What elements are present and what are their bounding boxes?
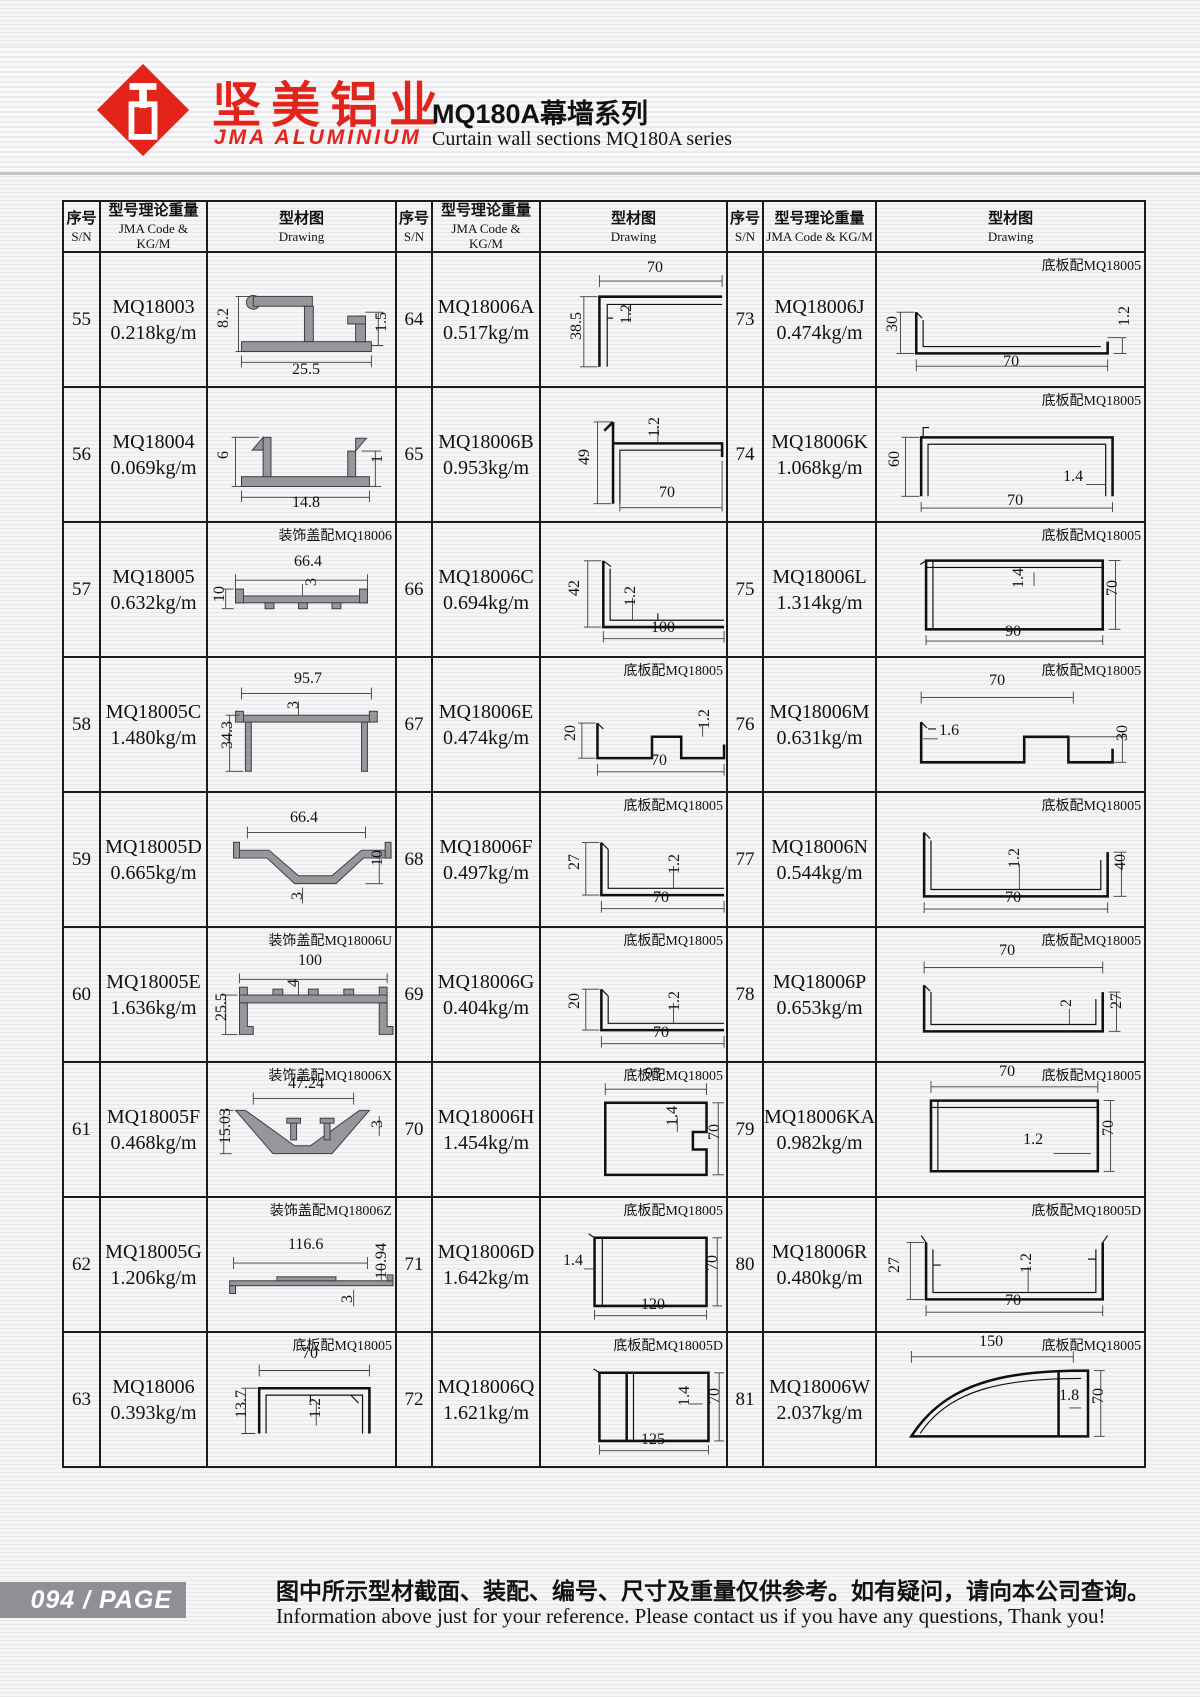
profile-code: MQ18006L <box>764 564 875 590</box>
dim-label: 70 <box>1003 354 1019 370</box>
col-header-drawing: 型材图Drawing <box>540 201 727 252</box>
dim-label: 70 <box>1105 580 1121 596</box>
dim-label: 1.5 <box>374 312 390 332</box>
col-header-sn: 序号S/N <box>396 201 432 252</box>
profile-weight: 0.404kg/m <box>433 995 539 1021</box>
table-row: 55 MQ180030.218kg/m 8.2 25.5 1.5 64 MQ18… <box>63 252 1145 387</box>
profile-weight: 1.642kg/m <box>433 1265 539 1291</box>
profile-weight: 0.517kg/m <box>433 320 539 346</box>
table-row: 58 MQ18005C1.480kg/m 95.7 34.3 3 67 MQ18… <box>63 657 1145 792</box>
table-row: 63 MQ180060.393kg/m 底板配MQ18005 70 13.7 1… <box>63 1332 1145 1467</box>
dim-label: 42 <box>567 580 583 596</box>
profile-code: MQ18006F <box>433 834 539 860</box>
profile-weight: 1.454kg/m <box>433 1130 539 1156</box>
profile-weight: 0.694kg/m <box>433 590 539 616</box>
code-cell: MQ18006B0.953kg/m <box>432 387 540 522</box>
profile-code: MQ18005D <box>101 834 206 860</box>
dim-label: 2 <box>1059 999 1075 1007</box>
col-header-code: 型号理论重量JMA Code & KG/M <box>763 201 876 252</box>
code-cell: MQ18006D1.642kg/m <box>432 1197 540 1332</box>
code-cell: MQ18006H1.454kg/m <box>432 1062 540 1197</box>
drawing-cell: 底板配MQ18005 93 1.4 70 <box>540 1062 727 1197</box>
footer-disclaimer-cn: 图中所示型材截面、装配、编号、尺寸及重量仅供参考。如有疑问，请向本公司查询。 <box>276 1572 1150 1606</box>
dim-label: 1.2 <box>623 586 639 606</box>
sn-cell: 76 <box>727 657 763 792</box>
drawing-cell: 6 14.8 1 <box>207 387 396 522</box>
sn-cell: 73 <box>727 252 763 387</box>
dim-label: 27 <box>887 1257 903 1273</box>
dim-label: 70 <box>302 1346 318 1362</box>
drawing-cell: 底板配MQ18005 60 1.4 70 <box>876 387 1145 522</box>
dim-label: 3 <box>290 892 306 900</box>
sn-cell: 75 <box>727 522 763 657</box>
table-row: 56 MQ180040.069kg/m 6 14.8 1 65 MQ18006B… <box>63 387 1145 522</box>
sn-cell: 66 <box>396 522 432 657</box>
profile-code: MQ18006W <box>764 1374 875 1400</box>
dim-label: 20 <box>567 993 583 1009</box>
profile-weight: 0.468kg/m <box>101 1130 206 1156</box>
drawing-cell: 装饰盖配MQ18006X 47.24 15.03 3 <box>207 1062 396 1197</box>
table-header-row: 序号S/N 型号理论重量JMA Code & KG/M 型材图Drawing 序… <box>63 201 1145 252</box>
drawing-cell: 底板配MQ18005D 27 1.2 70 <box>876 1197 1145 1332</box>
header-code-cn: 型号理论重量 <box>764 210 875 229</box>
dim-label: 1.4 <box>677 1386 693 1406</box>
col-header-code: 型号理论重量JMA Code & KG/M <box>432 201 540 252</box>
dim-label: 66.4 <box>290 810 318 826</box>
dim-label: 95.7 <box>294 671 322 687</box>
code-cell: MQ18006W2.037kg/m <box>763 1332 876 1467</box>
drawing-cell: 95.7 34.3 3 <box>207 657 396 792</box>
dim-label: 27 <box>567 854 583 870</box>
profile-code: MQ18006KA <box>764 1104 875 1130</box>
profile-code: MQ18005F <box>101 1104 206 1130</box>
sn-cell: 63 <box>63 1332 100 1467</box>
drawing-cell: 装饰盖配MQ18006 66.4 3 10 <box>207 522 396 657</box>
profile-weight: 0.631kg/m <box>764 725 875 751</box>
dim-label: 8.2 <box>216 308 232 328</box>
header-code-en: JMA Code & KG/M <box>101 221 206 251</box>
code-cell: MQ18006N0.544kg/m <box>763 792 876 927</box>
dim-label: 1.4 <box>1011 568 1027 588</box>
drawing-cell: 底板配MQ18005 20 1.2 70 <box>540 927 727 1062</box>
profile-weight: 0.497kg/m <box>433 860 539 886</box>
profile-code: MQ18006R <box>764 1239 875 1265</box>
dim-label: 93 <box>645 1066 661 1082</box>
table-row: 59 MQ18005D0.665kg/m 66.4 10 3 68 MQ1800… <box>63 792 1145 927</box>
profile-65-drawing-icon <box>541 397 726 517</box>
footer-disclaimer-en: Information above just for your referenc… <box>276 1604 1105 1629</box>
sn-cell: 57 <box>63 522 100 657</box>
profile-weight: 1.068kg/m <box>764 455 875 481</box>
dim-label: 49 <box>577 449 593 465</box>
drawing-cell: 66.4 10 3 <box>207 792 396 927</box>
code-cell: MQ18006P0.653kg/m <box>763 927 876 1062</box>
code-cell: MQ18005D0.665kg/m <box>100 792 207 927</box>
drawing-cell: 装饰盖配MQ18006Z 116.6 10.94 3 <box>207 1197 396 1332</box>
code-cell: MQ18005E1.636kg/m <box>100 927 207 1062</box>
dim-label: 70 <box>705 1255 721 1271</box>
drawing-cell: 42 1.2 100 <box>540 522 727 657</box>
code-cell: MQ18006R0.480kg/m <box>763 1197 876 1332</box>
dim-label: 60 <box>887 451 903 467</box>
dim-label: 34.3 <box>220 721 236 749</box>
table-row: 62 MQ18005G1.206kg/m 装饰盖配MQ18006Z 116.6 … <box>63 1197 1145 1332</box>
drawing-cell: 49 1.2 70 <box>540 387 727 522</box>
sn-cell: 61 <box>63 1062 100 1197</box>
code-cell: MQ18006F0.497kg/m <box>432 792 540 927</box>
profile-code: MQ18006D <box>433 1239 539 1265</box>
sn-cell: 70 <box>396 1062 432 1197</box>
sn-cell: 60 <box>63 927 100 1062</box>
header-code-cn: 型号理论重量 <box>101 202 206 221</box>
code-cell: MQ18006G0.404kg/m <box>432 927 540 1062</box>
profile-80-drawing-icon <box>877 1207 1142 1327</box>
sn-cell: 72 <box>396 1332 432 1467</box>
sn-cell: 59 <box>63 792 100 927</box>
dim-label: 90 <box>1005 624 1021 640</box>
code-cell: MQ18006J0.474kg/m <box>763 252 876 387</box>
dim-label: 1.6 <box>939 723 959 739</box>
profile-code: MQ18003 <box>101 294 206 320</box>
drawing-cell: 底板配MQ18005 1.4 90 70 <box>876 522 1145 657</box>
dim-label: 25.5 <box>214 993 230 1021</box>
dim-label: 1.2 <box>697 709 713 729</box>
drawing-cell: 底板配MQ18005D 1.4 125 70 <box>540 1332 727 1467</box>
dim-label: 3 <box>370 1120 386 1128</box>
sn-cell: 65 <box>396 387 432 522</box>
drawing-cell: 底板配MQ18005 1.4 120 70 <box>540 1197 727 1332</box>
dim-label: 70 <box>653 1025 669 1041</box>
sn-cell: 67 <box>396 657 432 792</box>
profile-code: MQ18006G <box>433 969 539 995</box>
code-cell: MQ18006K1.068kg/m <box>763 387 876 522</box>
header-draw-cn: 型材图 <box>208 210 395 229</box>
drawing-cell: 底板配MQ18005 70 13.7 1.2 <box>207 1332 396 1467</box>
profile-code: MQ18006M <box>764 699 875 725</box>
sn-cell: 62 <box>63 1197 100 1332</box>
drawing-cell: 底板配MQ18005 30 70 1.2 <box>876 252 1145 387</box>
sn-cell: 64 <box>396 252 432 387</box>
dim-label: 1.4 <box>1063 469 1083 485</box>
profile-weight: 0.953kg/m <box>433 455 539 481</box>
dim-label: 10.94 <box>374 1243 390 1279</box>
dim-label: 70 <box>1005 890 1021 906</box>
profile-code: MQ18006B <box>433 429 539 455</box>
sn-cell: 79 <box>727 1062 763 1197</box>
dim-label: 70 <box>707 1388 723 1404</box>
col-header-sn: 序号S/N <box>63 201 100 252</box>
header-code-en: JMA Code & KG/M <box>433 221 539 251</box>
sn-cell: 81 <box>727 1332 763 1467</box>
profile-code: MQ18006K <box>764 429 875 455</box>
code-cell: MQ18005C1.480kg/m <box>100 657 207 792</box>
profile-weight: 1.314kg/m <box>764 590 875 616</box>
profile-weight: 0.474kg/m <box>433 725 539 751</box>
code-cell: MQ180040.069kg/m <box>100 387 207 522</box>
profile-code: MQ18006 <box>101 1374 206 1400</box>
profile-code: MQ18006H <box>433 1104 539 1130</box>
profile-weight: 0.653kg/m <box>764 995 875 1021</box>
code-cell: MQ18006L1.314kg/m <box>763 522 876 657</box>
page-title-cn: MQ180A幕墙系列 <box>432 92 648 131</box>
dim-label: 70 <box>1091 1388 1107 1404</box>
header-code-en: JMA Code & KG/M <box>764 229 875 244</box>
drawing-cell: 装饰盖配MQ18006U 100 25.5 4 <box>207 927 396 1062</box>
dim-label: 70 <box>1005 1293 1021 1309</box>
dim-label: 70 <box>651 753 667 769</box>
dim-label: 3 <box>304 578 320 586</box>
dim-label: 1.2 <box>667 991 683 1011</box>
drawing-cell: 底板配MQ18005 20 1.2 70 <box>540 657 727 792</box>
dim-label: 1.2 <box>619 304 635 324</box>
profile-code: MQ18006N <box>764 834 875 860</box>
profile-weight: 0.218kg/m <box>101 320 206 346</box>
page-title-en: Curtain wall sections MQ180A series <box>432 128 732 151</box>
header-draw-cn: 型材图 <box>877 210 1144 229</box>
dim-label: 20 <box>563 725 579 741</box>
sn-cell: 77 <box>727 792 763 927</box>
dim-label: 116.6 <box>288 1237 323 1253</box>
drawing-cell: 底板配MQ18005 1.2 70 40 <box>876 792 1145 927</box>
jma-diamond-logo-icon <box>95 62 191 158</box>
header-draw-cn: 型材图 <box>541 210 726 229</box>
dim-label: 70 <box>653 890 669 906</box>
profile-weight: 1.636kg/m <box>101 995 206 1021</box>
dim-label: 40 <box>1113 854 1129 870</box>
profile-catalog-table: 序号S/N 型号理论重量JMA Code & KG/M 型材图Drawing 序… <box>62 200 1146 1468</box>
dim-label: 1.2 <box>308 1398 324 1418</box>
sn-cell: 68 <box>396 792 432 927</box>
col-header-sn: 序号S/N <box>727 201 763 252</box>
code-cell: MQ18005F0.468kg/m <box>100 1062 207 1197</box>
drawing-cell: 底板配MQ18005 70 1.2 70 <box>876 1062 1145 1197</box>
code-cell: MQ18005G1.206kg/m <box>100 1197 207 1332</box>
profile-62-drawing-icon <box>208 1207 395 1327</box>
header-draw-en: Drawing <box>541 229 726 244</box>
profile-code: MQ18006A <box>433 294 539 320</box>
code-cell: MQ18006M0.631kg/m <box>763 657 876 792</box>
sn-cell: 74 <box>727 387 763 522</box>
dim-label: 70 <box>999 943 1015 959</box>
dim-label: 1.2 <box>1023 1132 1043 1148</box>
dim-label: 1.4 <box>563 1253 583 1269</box>
sn-cell: 78 <box>727 927 763 1062</box>
col-header-drawing: 型材图Drawing <box>876 201 1145 252</box>
dim-label: 1.2 <box>667 854 683 874</box>
profile-72-drawing-icon <box>541 1342 726 1462</box>
profile-weight: 1.480kg/m <box>101 725 206 751</box>
profile-code: MQ18005C <box>101 699 206 725</box>
profile-code: MQ18006P <box>764 969 875 995</box>
profile-57-drawing-icon <box>208 532 395 652</box>
dim-label: 3 <box>286 701 302 709</box>
code-cell: MQ18006Q1.621kg/m <box>432 1332 540 1467</box>
dim-label: 25.5 <box>292 362 320 378</box>
dim-label: 47.24 <box>288 1076 324 1092</box>
header-sn-cn: 序号 <box>728 210 762 229</box>
code-cell: MQ18006KA0.982kg/m <box>763 1062 876 1197</box>
drawing-cell: 底板配MQ18005 70 2 27 <box>876 927 1145 1062</box>
dim-label: 70 <box>1007 493 1023 509</box>
dim-label: 30 <box>885 316 901 332</box>
dim-label: 1.2 <box>1117 306 1133 326</box>
code-cell: MQ180060.393kg/m <box>100 1332 207 1467</box>
dim-label: 66.4 <box>294 554 322 570</box>
header-sn-cn: 序号 <box>64 210 99 229</box>
dim-label: 70 <box>999 1064 1015 1080</box>
profile-weight: 0.393kg/m <box>101 1400 206 1426</box>
col-header-code: 型号理论重量JMA Code & KG/M <box>100 201 207 252</box>
code-cell: MQ18006E0.474kg/m <box>432 657 540 792</box>
drawing-cell: 底板配MQ18005 150 1.8 70 <box>876 1332 1145 1467</box>
profile-weight: 2.037kg/m <box>764 1400 875 1426</box>
dim-label: 10 <box>212 586 228 602</box>
dim-label: 4 <box>286 979 302 987</box>
dim-label: 70 <box>707 1124 723 1140</box>
profile-code: MQ18005E <box>101 969 206 995</box>
dim-label: 1.2 <box>1019 1253 1035 1273</box>
company-name-en: JMA ALUMINIUM <box>214 126 422 150</box>
header-sn-cn: 序号 <box>397 210 431 229</box>
dim-label: 1.2 <box>1007 848 1023 868</box>
profile-code: MQ18006J <box>764 294 875 320</box>
header-sn-en: S/N <box>397 229 431 244</box>
dim-label: 30 <box>1115 725 1131 741</box>
dim-label: 27 <box>1109 993 1125 1009</box>
profile-weight: 1.206kg/m <box>101 1265 206 1291</box>
dim-label: 150 <box>979 1334 1003 1350</box>
dim-label: 14.8 <box>292 495 320 511</box>
sn-cell: 80 <box>727 1197 763 1332</box>
dim-label: 1.8 <box>1059 1388 1079 1404</box>
profile-weight: 0.069kg/m <box>101 455 206 481</box>
drawing-cell: 底板配MQ18005 70 1.6 30 <box>876 657 1145 792</box>
dim-label: 38.5 <box>569 312 585 340</box>
profile-76-drawing-icon <box>877 667 1142 787</box>
dim-label: 3 <box>340 1295 356 1303</box>
dim-label: 125 <box>641 1432 665 1448</box>
code-cell: MQ18006C0.694kg/m <box>432 522 540 657</box>
profile-code: MQ18004 <box>101 429 206 455</box>
header-code-cn: 型号理论重量 <box>433 202 539 221</box>
col-header-drawing: 型材图Drawing <box>207 201 396 252</box>
code-cell: MQ18006A0.517kg/m <box>432 252 540 387</box>
profile-code: MQ18005G <box>101 1239 206 1265</box>
profile-weight: 0.665kg/m <box>101 860 206 886</box>
page-number-badge: 094 / PAGE <box>0 1582 186 1618</box>
sn-cell: 58 <box>63 657 100 792</box>
dim-label: 13.7 <box>234 1390 250 1418</box>
dim-label: 100 <box>651 620 675 636</box>
dim-label: 70 <box>1101 1120 1117 1136</box>
table-row: 57 MQ180050.632kg/m 装饰盖配MQ18006 66.4 3 1… <box>63 522 1145 657</box>
dim-label: 15.03 <box>218 1108 234 1144</box>
code-cell: MQ180030.218kg/m <box>100 252 207 387</box>
dim-label: 1.4 <box>665 1106 681 1126</box>
profile-code: MQ18006C <box>433 564 539 590</box>
code-cell: MQ180050.632kg/m <box>100 522 207 657</box>
profile-code: MQ18006Q <box>433 1374 539 1400</box>
dim-label: 1 <box>370 455 386 463</box>
sn-cell: 71 <box>396 1197 432 1332</box>
profile-weight: 0.632kg/m <box>101 590 206 616</box>
header-draw-en: Drawing <box>877 229 1144 244</box>
dim-label: 1.2 <box>647 417 663 437</box>
profile-weight: 0.544kg/m <box>764 860 875 886</box>
profile-weight: 0.474kg/m <box>764 320 875 346</box>
profile-70-drawing-icon <box>541 1072 726 1192</box>
profile-code: MQ18005 <box>101 564 206 590</box>
table-row: 61 MQ18005F0.468kg/m 装饰盖配MQ18006X 47.24 … <box>63 1062 1145 1197</box>
header-sn-en: S/N <box>728 229 762 244</box>
dim-label: 70 <box>989 673 1005 689</box>
dim-label: 10 <box>370 850 386 866</box>
header-draw-en: Drawing <box>208 229 395 244</box>
sn-cell: 56 <box>63 387 100 522</box>
drawing-cell: 底板配MQ18005 27 1.2 70 <box>540 792 727 927</box>
sn-cell: 55 <box>63 252 100 387</box>
dim-label: 6 <box>216 451 232 459</box>
profile-code: MQ18006E <box>433 699 539 725</box>
dim-label: 70 <box>659 485 675 501</box>
table-row: 60 MQ18005E1.636kg/m 装饰盖配MQ18006U 100 25… <box>63 927 1145 1062</box>
profile-weight: 0.982kg/m <box>764 1130 875 1156</box>
profile-weight: 0.480kg/m <box>764 1265 875 1291</box>
drawing-cell: 70 38.5 1.2 <box>540 252 727 387</box>
dim-label: 120 <box>641 1297 665 1313</box>
profile-weight: 1.621kg/m <box>433 1400 539 1426</box>
sn-cell: 69 <box>396 927 432 1062</box>
header-sn-en: S/N <box>64 229 99 244</box>
drawing-cell: 8.2 25.5 1.5 <box>207 252 396 387</box>
dim-label: 100 <box>298 953 322 969</box>
dim-label: 70 <box>647 260 663 276</box>
